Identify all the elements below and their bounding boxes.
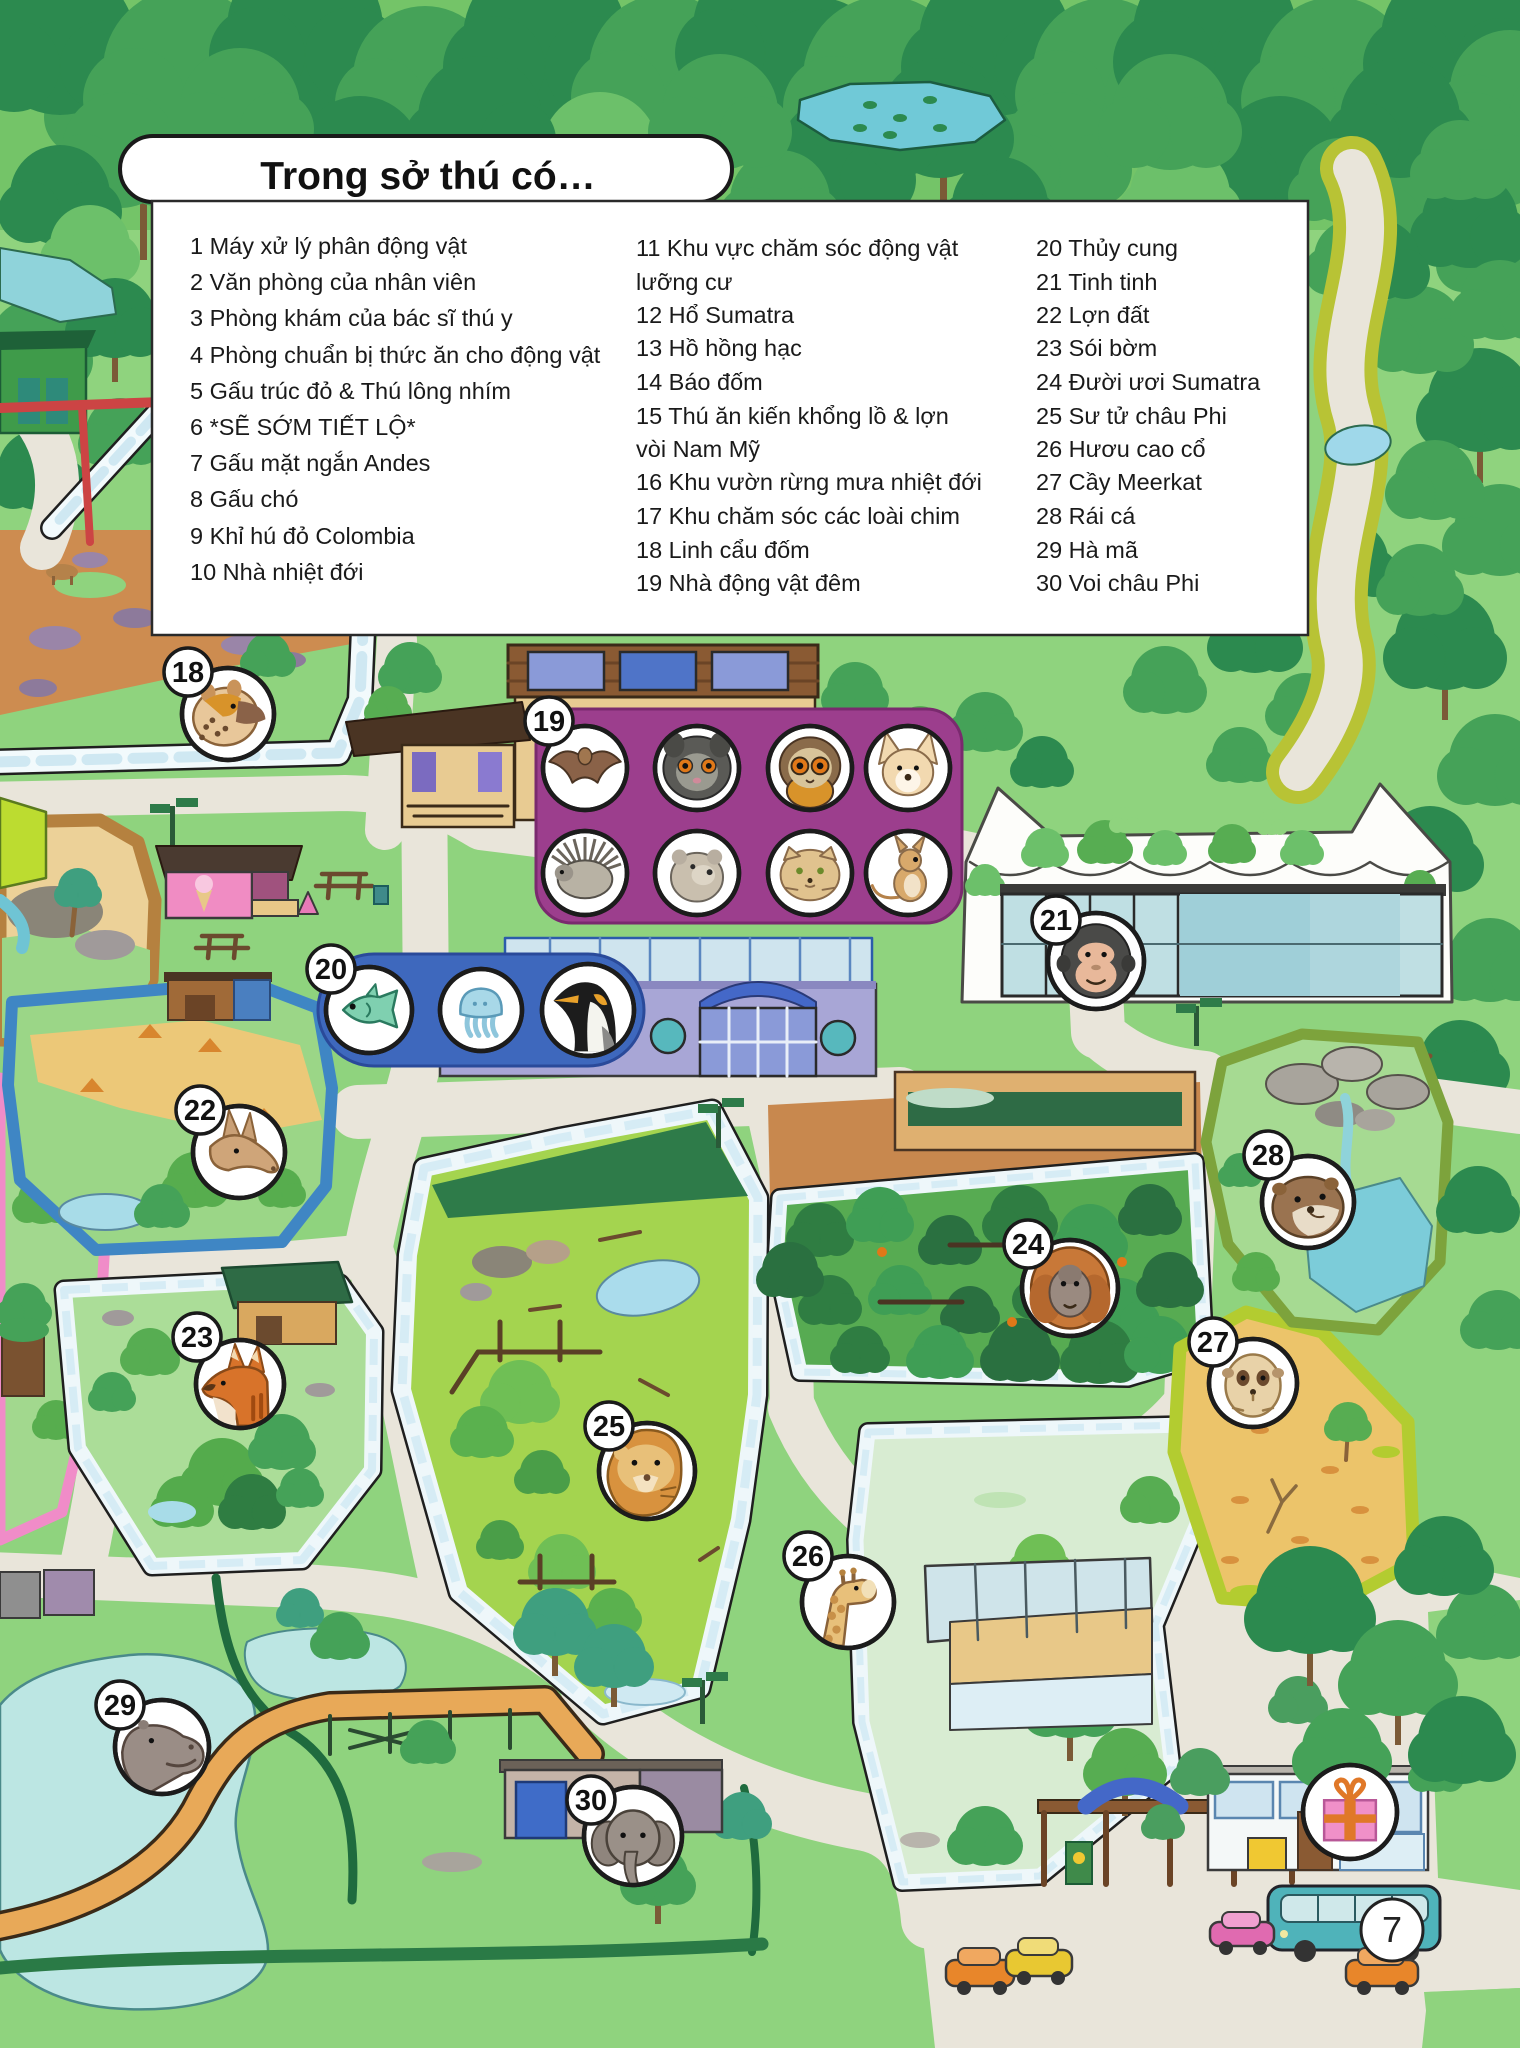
svg-text:7 Gấu mặt ngắn Andes: 7 Gấu mặt ngắn Andes [190,450,430,476]
svg-text:18 Linh cẩu đốm: 18 Linh cẩu đốm [636,537,810,563]
svg-text:11 Khu vực chăm sóc động vật: 11 Khu vực chăm sóc động vật [636,235,959,261]
svg-text:20: 20 [315,954,347,986]
svg-text:23 Sói bờm: 23 Sói bờm [1036,335,1157,361]
svg-text:21: 21 [1040,905,1072,937]
svg-text:29: 29 [104,1690,136,1722]
svg-text:3 Phòng khám của bác sĩ thú y: 3 Phòng khám của bác sĩ thú y [190,305,513,331]
svg-text:21 Tinh tinh: 21 Tinh tinh [1036,269,1158,295]
svg-text:19 Nhà động vật đêm: 19 Nhà động vật đêm [636,570,861,596]
svg-text:8 Gấu chó: 8 Gấu chó [190,486,298,512]
svg-text:29 Hà mã: 29 Hà mã [1036,537,1139,563]
svg-text:20 Thủy cung: 20 Thủy cung [1036,235,1178,261]
svg-text:27 Cầy Meerkat: 27 Cầy Meerkat [1036,469,1202,495]
svg-text:6 *SẼ SỚM TIẾT LỘ*: 6 *SẼ SỚM TIẾT LỘ* [190,413,416,440]
svg-text:12 Hổ Sumatra: 12 Hổ Sumatra [636,302,795,328]
svg-text:25 Sư tử châu Phi: 25 Sư tử châu Phi [1036,403,1227,429]
svg-text:16 Khu vườn rừng mưa nhiệt đới: 16 Khu vườn rừng mưa nhiệt đới [636,469,982,495]
svg-text:24 Đười ươi Sumatra: 24 Đười ươi Sumatra [1036,369,1261,395]
svg-text:19: 19 [533,706,565,738]
svg-text:vòi Nam Mỹ: vòi Nam Mỹ [636,436,760,462]
svg-text:15 Thú ăn kiến khổng lồ & lợn: 15 Thú ăn kiến khổng lồ & lợn [636,403,949,429]
svg-text:14 Báo đốm: 14 Báo đốm [636,369,763,395]
svg-text:9 Khỉ hú đỏ Colombia: 9 Khỉ hú đỏ Colombia [190,523,416,549]
svg-text:23: 23 [181,1322,213,1354]
svg-text:24: 24 [1012,1229,1044,1261]
svg-text:26: 26 [792,1541,824,1573]
svg-text:28: 28 [1252,1140,1284,1172]
svg-text:lưỡng cư: lưỡng cư [636,269,733,295]
svg-text:30 Voi châu Phi: 30 Voi châu Phi [1036,570,1199,596]
svg-text:1 Máy xử lý phân động vật: 1 Máy xử lý phân động vật [190,233,467,259]
svg-text:27: 27 [1197,1327,1229,1359]
svg-text:17 Khu chăm sóc các loài chim: 17 Khu chăm sóc các loài chim [636,503,960,529]
svg-text:22 Lợn đất: 22 Lợn đất [1036,302,1150,328]
svg-text:26 Hươu cao cổ: 26 Hươu cao cổ [1036,436,1206,462]
svg-text:7: 7 [1382,1909,1402,1950]
svg-text:30: 30 [575,1785,607,1817]
svg-text:25: 25 [593,1411,625,1443]
svg-text:5 Gấu trúc đỏ & Thú lông nhím: 5 Gấu trúc đỏ & Thú lông nhím [190,378,511,404]
svg-text:28 Rái cá: 28 Rái cá [1036,503,1136,529]
svg-text:2 Văn phòng của nhân viên: 2 Văn phòng của nhân viên [190,269,476,295]
svg-text:22: 22 [184,1095,216,1127]
svg-text:4 Phòng chuẩn bị thức ăn cho đ: 4 Phòng chuẩn bị thức ăn cho động vật [190,342,601,368]
svg-text:10 Nhà nhiệt đới: 10 Nhà nhiệt đới [190,559,364,585]
svg-text:13 Hồ hồng hạc: 13 Hồ hồng hạc [636,335,802,361]
svg-text:18: 18 [172,657,204,689]
svg-text:Trong sở thú có…: Trong sở thú có… [260,155,595,198]
